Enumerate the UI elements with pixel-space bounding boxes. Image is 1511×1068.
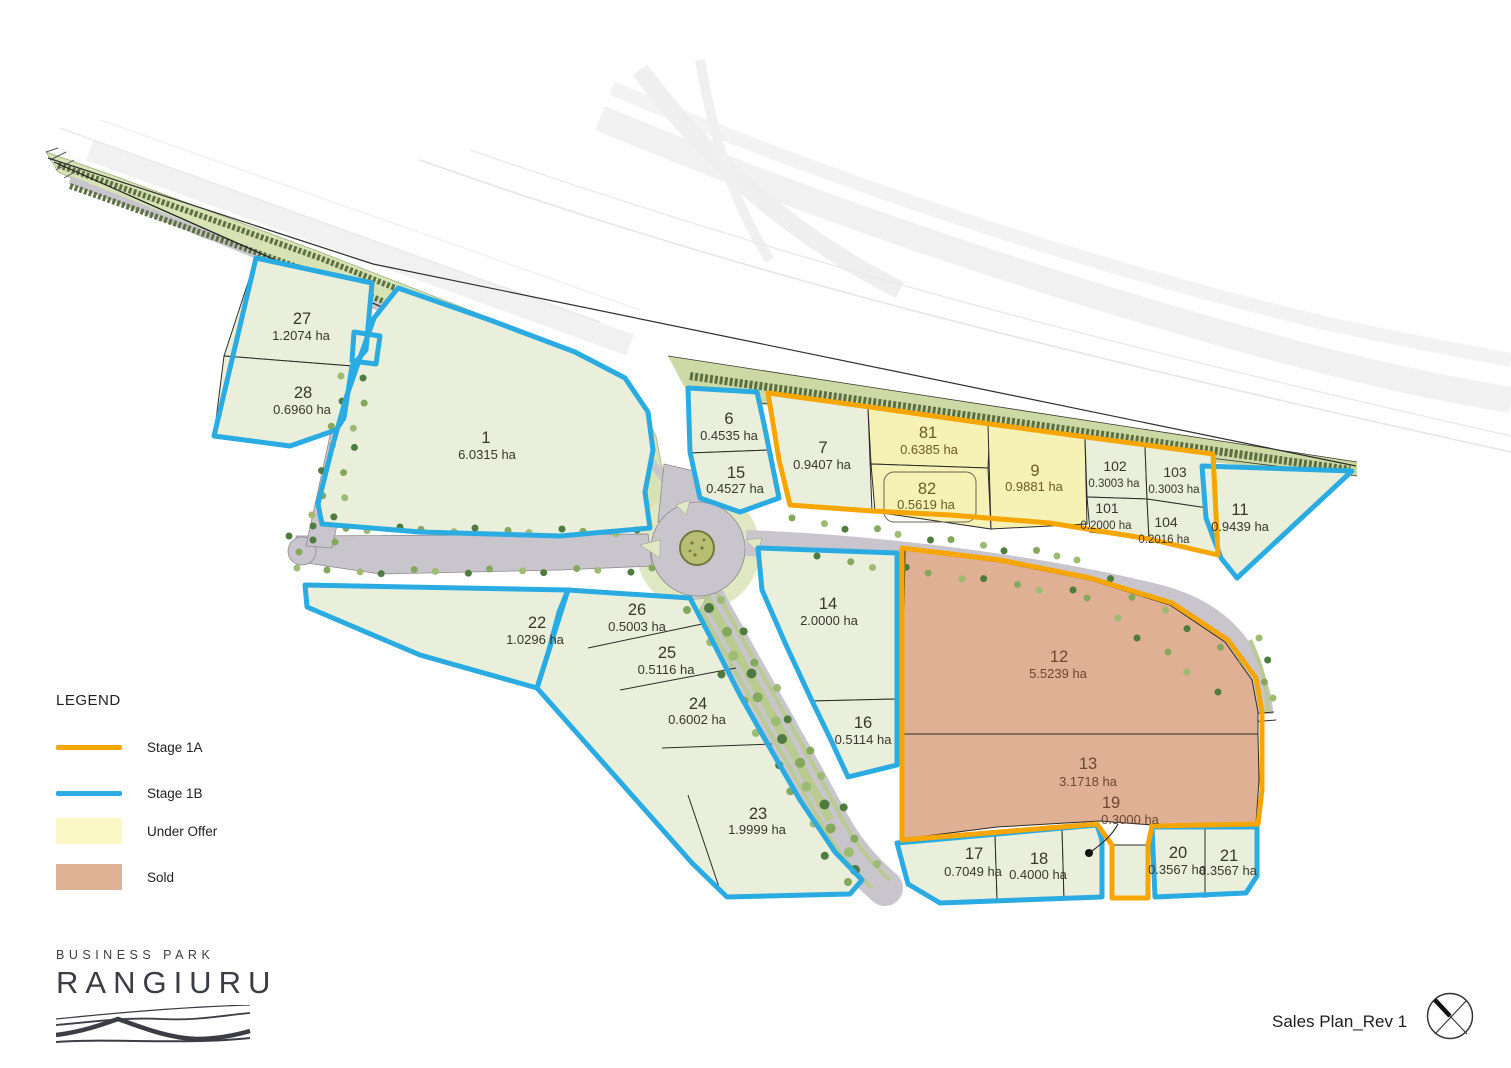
tree-icon — [1261, 679, 1268, 686]
lot-9-area: 0.9881 ha — [1005, 479, 1064, 494]
lot-24-area: 0.6002 ha — [668, 712, 727, 727]
lot-26-area: 0.5003 ha — [608, 619, 667, 634]
lot-22-number: 22 — [528, 614, 546, 632]
north-arrow-icon — [1422, 990, 1478, 1046]
tree-icon — [747, 669, 757, 679]
legend-item-stage-1b: Stage 1B — [56, 786, 203, 801]
tree-icon — [486, 566, 493, 573]
roundabout-island — [680, 531, 714, 565]
tree-icon — [1014, 581, 1021, 588]
tree-icon — [784, 715, 792, 723]
lot-102-area: 0.3003 ha — [1088, 478, 1140, 490]
tree-icon — [717, 596, 725, 604]
tree-icon — [717, 670, 725, 678]
tree-icon — [814, 553, 821, 560]
tree-icon — [351, 444, 358, 451]
tree-icon — [847, 558, 854, 565]
lot-82-area: 0.5619 ha — [897, 497, 956, 512]
tree-icon — [817, 772, 825, 780]
legend-label: Stage 1A — [147, 740, 203, 755]
tree-icon — [1165, 649, 1172, 656]
tree-icon — [1115, 615, 1122, 622]
tree-icon — [340, 469, 347, 476]
tree-icon — [1074, 557, 1081, 564]
tree-icon — [728, 651, 738, 661]
lot-25-number: 25 — [658, 644, 676, 662]
lot-parcels — [214, 258, 1352, 903]
lot-9-number: 9 — [1030, 462, 1039, 480]
tree-icon — [332, 539, 339, 546]
tree-icon — [324, 567, 331, 574]
tree-icon — [361, 400, 368, 407]
logo-rangiuru: RANGIURU — [56, 965, 277, 1001]
tree-icon — [840, 803, 848, 811]
tree-icon — [296, 549, 303, 556]
tree-icon — [873, 860, 881, 868]
tree-icon — [1036, 587, 1043, 594]
logo-waves-icon — [56, 1005, 252, 1051]
lot-19-shape — [1062, 825, 1102, 899]
tree-icon — [869, 564, 876, 571]
lot-28-area: 0.6960 ha — [273, 402, 332, 417]
tree-icon — [683, 606, 691, 614]
tree-icon — [1256, 635, 1263, 642]
tree-icon — [540, 569, 547, 576]
tree-icon — [826, 823, 836, 833]
tree-icon — [850, 835, 858, 843]
lot-22-area: 1.0296 ha — [506, 632, 565, 647]
lot-16-number: 16 — [854, 714, 872, 732]
lot-1-area: 6.0315 ha — [458, 447, 517, 462]
lot-20-number: 20 — [1169, 844, 1187, 862]
lot-103-area: 0.3003 ha — [1148, 484, 1200, 496]
lot-27-number: 27 — [293, 310, 311, 328]
legend-item-stage-1a: Stage 1A — [56, 740, 203, 755]
tree-icon — [844, 847, 854, 857]
tree-icon — [1264, 657, 1271, 664]
tree-icon — [1134, 635, 1141, 642]
lot-101-number: 101 — [1095, 500, 1119, 516]
lot-7-area: 0.9407 ha — [793, 457, 852, 472]
tree-icon — [980, 575, 987, 582]
lot-6-number: 6 — [724, 410, 733, 428]
tree-icon — [821, 852, 829, 860]
lot-24-number: 24 — [689, 695, 707, 713]
tree-icon — [1129, 594, 1136, 601]
lot-17-number: 17 — [965, 845, 983, 863]
legend-item-under-offer: Under Offer — [56, 818, 217, 844]
lot-20-area: 0.3567 ha — [1148, 862, 1207, 877]
tree-icon — [842, 526, 849, 533]
tree-icon — [980, 542, 987, 549]
lot-12-number: 12 — [1050, 648, 1068, 666]
lot-27-area: 1.2074 ha — [272, 328, 331, 343]
lot-7-number: 7 — [818, 439, 827, 457]
tree-icon — [519, 567, 526, 574]
tree-icon — [330, 513, 337, 520]
tree-icon — [948, 536, 955, 543]
lot-13-area: 3.1718 ha — [1059, 774, 1118, 789]
tree-icon — [627, 569, 634, 576]
brand-logo: BUSINESS PARK RANGIURU — [56, 948, 277, 1056]
tree-icon — [1270, 695, 1277, 702]
logo-business-park: BUSINESS PARK — [56, 948, 277, 962]
lot-81-area: 0.6385 ha — [900, 442, 959, 457]
tree-icon — [895, 531, 902, 538]
tree-icon — [350, 425, 357, 432]
tree-icon — [649, 565, 656, 572]
tree-icon — [338, 373, 345, 380]
tree-icon — [310, 537, 317, 544]
tree-icon — [925, 570, 932, 577]
lot-23-number: 23 — [749, 805, 767, 823]
lot-14-area: 2.0000 ha — [800, 613, 859, 628]
tree-icon — [432, 568, 439, 575]
lot-23-area: 1.9999 ha — [728, 822, 787, 837]
legend-item-sold: Sold — [56, 864, 174, 890]
lot-13-number: 13 — [1079, 755, 1097, 773]
lot-6-area: 0.4535 ha — [700, 428, 759, 443]
tree-icon — [1070, 587, 1077, 594]
tree-icon — [286, 533, 293, 540]
lot-82-number: 82 — [918, 480, 936, 498]
tree-icon — [753, 692, 763, 702]
tree-icon — [559, 526, 566, 533]
tree-icon — [1184, 669, 1191, 676]
lot-104-number: 104 — [1154, 514, 1178, 530]
tree-icon — [308, 511, 315, 518]
lot-26-number: 26 — [628, 601, 646, 619]
lot-16-area: 0.5114 ha — [835, 732, 893, 747]
sold-swatch — [56, 864, 122, 890]
tree-icon — [472, 525, 479, 532]
tree-icon — [773, 684, 781, 692]
lot-11-number: 11 — [1231, 501, 1248, 519]
site-plan-map: 271.2074 ha280.6960 ha16.0315 ha60.4535 … — [0, 0, 1511, 1068]
lot-25-area: 0.5116 ha — [638, 662, 696, 677]
tree-icon — [1033, 547, 1040, 554]
tree-icon — [1215, 689, 1222, 696]
tree-icon — [341, 494, 348, 501]
legend-title: LEGEND — [56, 692, 286, 709]
tree-icon — [820, 800, 830, 810]
tree-icon — [750, 659, 758, 667]
lot-103-number: 103 — [1163, 464, 1187, 480]
lot-17-area: 0.7049 ha — [944, 864, 1003, 879]
plan-title: Sales Plan_Rev 1 — [1272, 1012, 1407, 1032]
lot-81-number: 81 — [919, 424, 937, 442]
tree-icon — [740, 627, 748, 635]
tree-icon — [1217, 644, 1224, 651]
tree-icon — [1001, 547, 1008, 554]
tree-icon — [704, 603, 714, 613]
tree-icon — [795, 758, 805, 768]
tree-icon — [360, 375, 367, 382]
tree-icon — [958, 575, 965, 582]
lot-19-area: 0.3000 ha — [1101, 812, 1160, 827]
lot-11-area: 0.9439 ha — [1211, 519, 1270, 534]
under-offer-swatch — [56, 818, 122, 844]
lot-18-number: 18 — [1030, 850, 1048, 868]
lot-28-number: 28 — [294, 384, 312, 402]
lot-1-number: 1 — [481, 429, 490, 447]
lot-18-area: 0.4000 ha — [1009, 867, 1068, 882]
tree-icon — [789, 515, 796, 522]
lot-15-area: 0.4527 ha — [706, 481, 765, 496]
tree-icon — [357, 568, 364, 575]
tree-icon — [1162, 607, 1169, 614]
tree-icon — [777, 734, 787, 744]
legend-label: Sold — [147, 870, 174, 885]
legend: LEGEND Stage 1A Stage 1B Under Offer Sol… — [56, 692, 286, 907]
lot-102-number: 102 — [1103, 458, 1127, 474]
legend-label: Under Offer — [147, 824, 217, 839]
tree-icon — [874, 525, 881, 532]
lot-19-number: 19 — [1102, 794, 1120, 812]
tree-icon — [821, 520, 828, 527]
tree-icon — [573, 565, 580, 572]
tree-icon — [465, 570, 472, 577]
legend-label: Stage 1B — [147, 786, 203, 801]
lot-12-area: 5.5239 ha — [1029, 666, 1088, 681]
tree-icon — [594, 567, 601, 574]
tree-icon — [806, 747, 814, 755]
tree-icon — [1084, 595, 1091, 602]
tree-icon — [722, 627, 732, 637]
tree-icon — [801, 782, 811, 792]
tree-icon — [844, 878, 852, 886]
tree-icon — [378, 570, 385, 577]
tree-icon — [771, 716, 781, 726]
lot-101-area: 0.2000 ha — [1080, 520, 1132, 532]
lot-15-number: 15 — [727, 464, 745, 482]
tree-icon — [310, 523, 317, 530]
sales-plan-page: 271.2074 ha280.6960 ha16.0315 ha60.4535 … — [0, 0, 1511, 1068]
stage-1b-swatch — [56, 791, 122, 796]
tree-icon — [294, 565, 301, 572]
tree-icon — [1054, 553, 1061, 560]
lot-104-area: 0.2016 ha — [1138, 534, 1190, 546]
stage-1a-swatch — [56, 745, 122, 750]
tree-icon — [927, 537, 934, 544]
tree-icon — [1184, 625, 1191, 632]
tree-icon — [411, 566, 418, 573]
lot-21-area: 0.3567 ha — [1199, 863, 1258, 878]
lot-14-number: 14 — [819, 595, 837, 613]
small-reserve-parcel-shape — [1112, 845, 1148, 898]
